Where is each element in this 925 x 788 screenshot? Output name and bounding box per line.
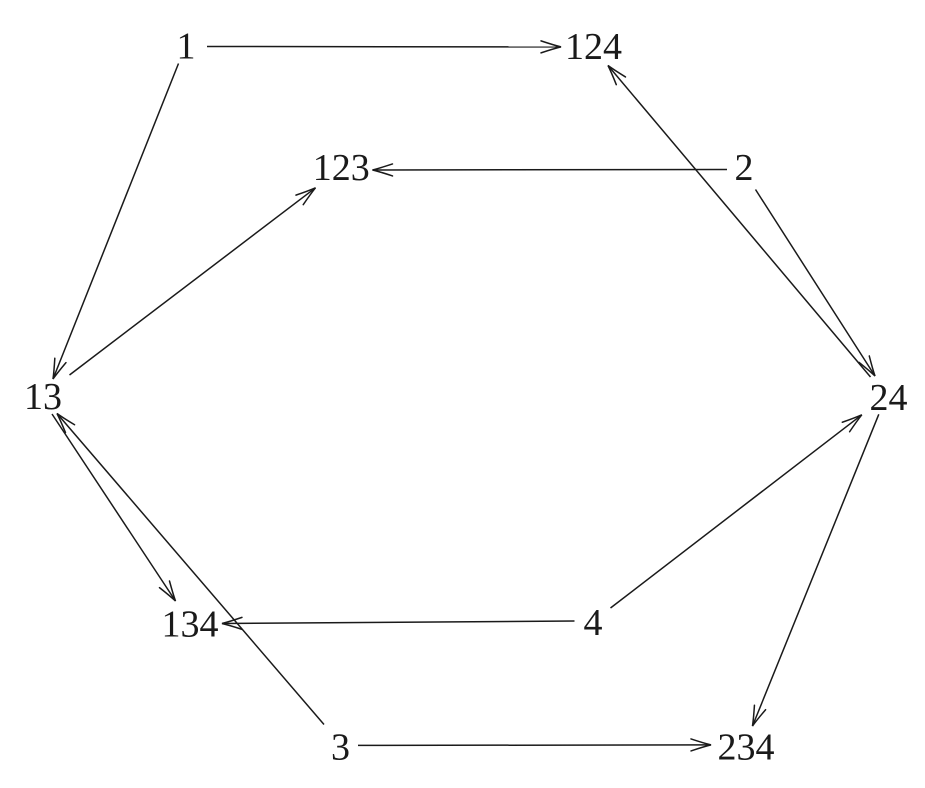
svg-text:3: 3: [331, 727, 350, 769]
svg-text:124: 124: [565, 26, 622, 68]
svg-text:4: 4: [584, 602, 603, 644]
svg-text:234: 234: [718, 727, 775, 769]
svg-text:13: 13: [24, 376, 62, 418]
svg-text:134: 134: [162, 603, 219, 645]
svg-text:123: 123: [313, 147, 370, 189]
svg-text:1: 1: [177, 26, 196, 68]
svg-text:24: 24: [870, 377, 908, 419]
svg-text:2: 2: [735, 147, 754, 189]
